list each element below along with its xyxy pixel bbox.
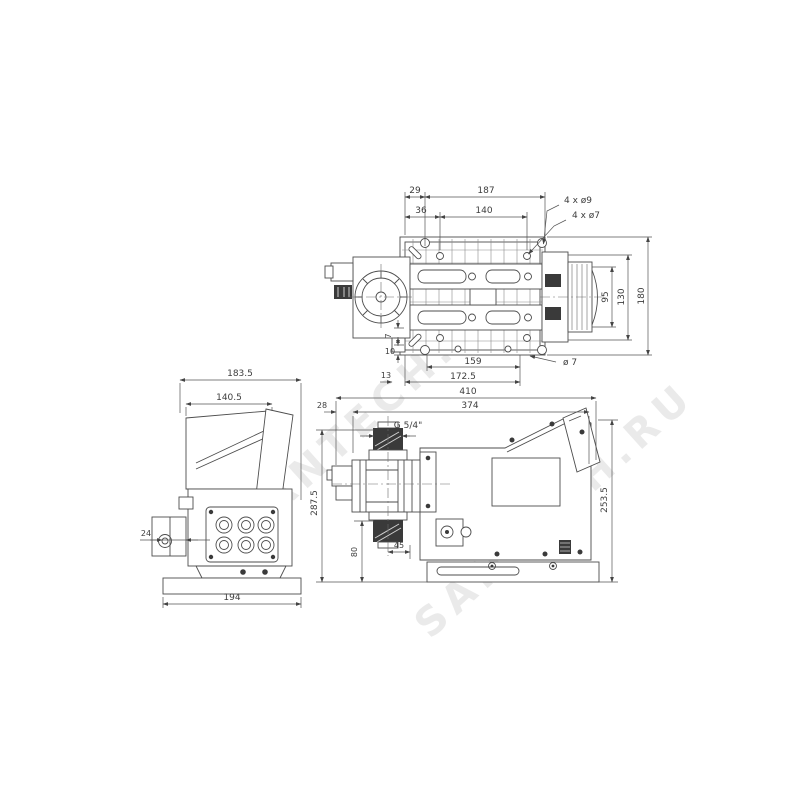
- side-tab: [179, 497, 193, 509]
- dim-159: 159: [464, 357, 481, 367]
- connector-plate: [206, 507, 278, 562]
- dim-180: 180: [637, 287, 647, 304]
- dim-holes-o7: 4 x ø7: [572, 211, 600, 221]
- hole-o7: [524, 253, 531, 260]
- base-slot: [437, 567, 519, 575]
- top-view: 29 187 36 140 4 x ø9 4 x ø7 95 130 180 7…: [325, 186, 652, 386]
- dim-183-5: 183.5: [227, 369, 253, 379]
- dim-130: 130: [617, 288, 627, 305]
- drain-port: [461, 527, 471, 537]
- dim-187: 187: [477, 186, 494, 196]
- dim-dia7: ø 7: [563, 358, 577, 368]
- dim-45: 45: [394, 541, 404, 550]
- head-adapter: [420, 452, 436, 512]
- dim-172-5: 172.5: [450, 372, 476, 382]
- plate-screw: [455, 346, 461, 352]
- fan-cap: [592, 270, 598, 325]
- base-screw: [240, 569, 246, 575]
- dim-29: 29: [409, 186, 421, 196]
- front-view: 183.5 140.5 24 194: [140, 369, 301, 608]
- dosing-head-side: [352, 460, 420, 512]
- dim-holes-o9: 4 x ø9: [564, 196, 592, 206]
- hole-o7: [437, 335, 444, 342]
- center-block: [470, 289, 496, 305]
- drain-box: [436, 519, 463, 546]
- dim-140: 140: [475, 206, 492, 216]
- dim-253-5: 253.5: [600, 487, 610, 513]
- mounting-plate: [392, 237, 547, 355]
- dim-374: 374: [461, 401, 478, 411]
- base-plate-front: [163, 578, 301, 594]
- side-bracket: [332, 466, 352, 486]
- dim-410: 410: [459, 387, 476, 397]
- mounting-bracket: [152, 517, 186, 556]
- dim-194: 194: [223, 593, 240, 603]
- terminal-block: [545, 307, 561, 320]
- dim-7: 7: [384, 333, 393, 338]
- terminal-block: [545, 274, 561, 287]
- plate-screw: [505, 346, 511, 352]
- hole-o9: [421, 346, 430, 355]
- hole-o9: [538, 346, 547, 355]
- pump-dimensional-drawing: SANTECH.RU SANTECH.RU: [0, 0, 800, 800]
- dim-24: 24: [141, 529, 151, 538]
- dim-140-5: 140.5: [216, 393, 242, 403]
- dim-13: 13: [381, 371, 391, 380]
- dim-287-5: 287.5: [310, 490, 320, 516]
- hole-o7: [437, 253, 444, 260]
- pump-body-front: [152, 409, 301, 594]
- dim-36: 36: [415, 206, 427, 216]
- dim-10: 10: [385, 347, 395, 356]
- cable-gland: [331, 263, 353, 281]
- dim-thread-g54: G 5/4": [394, 421, 422, 431]
- dim-95: 95: [601, 291, 611, 302]
- drawing-canvas: SANTECH.RU SANTECH.RU: [0, 0, 800, 800]
- base-screw: [262, 569, 268, 575]
- dim-80: 80: [350, 547, 359, 557]
- hole-o7: [524, 335, 531, 342]
- dim-28: 28: [317, 401, 327, 410]
